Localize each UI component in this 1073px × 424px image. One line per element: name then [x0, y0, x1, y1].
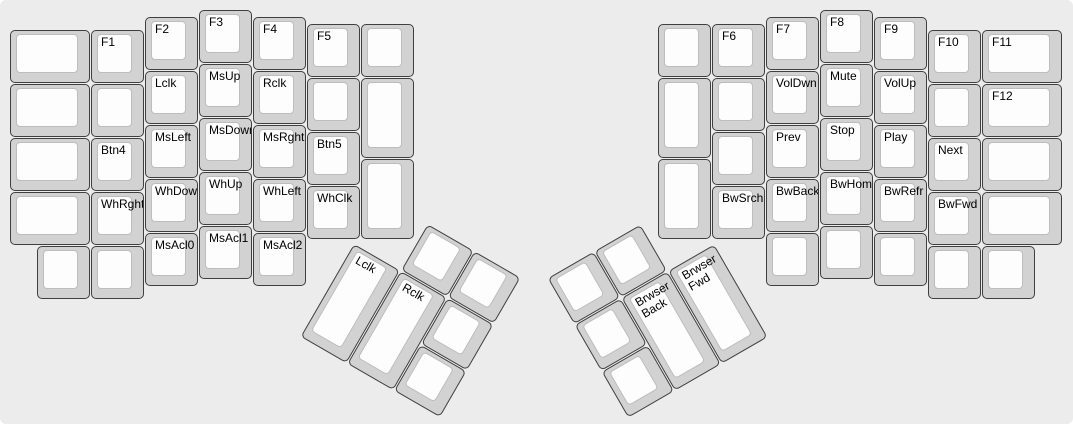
keytop: Rclk: [259, 75, 294, 114]
keytop: [609, 354, 659, 405]
key-label: Stop: [830, 124, 855, 137]
keytop: F6: [718, 28, 753, 67]
keytop: [16, 88, 78, 127]
key-label: Play: [884, 131, 907, 144]
key-label: Btn4: [101, 144, 126, 157]
keytop: WhUp: [205, 176, 240, 215]
keytop: Mute: [826, 68, 861, 107]
key-label: Next: [938, 144, 963, 157]
key-blank[interactable]: [982, 246, 1035, 299]
key-msup[interactable]: MsUp: [199, 64, 252, 117]
keytop: Prev: [772, 129, 807, 168]
key-lclk[interactable]: Lclk: [145, 71, 198, 124]
keytop: [988, 196, 1050, 235]
key-label: F7: [776, 23, 790, 36]
key-label: WhDown: [155, 185, 198, 198]
key-msacl0[interactable]: MsAcl0: [145, 233, 198, 286]
keytop: VolDwn: [772, 75, 807, 114]
keytop: WhRght: [97, 196, 132, 235]
key-label: F6: [722, 30, 736, 43]
keytop: WhLeft: [259, 183, 294, 222]
key-f10[interactable]: F10: [928, 30, 981, 83]
key-label: F1: [101, 36, 115, 49]
key-label: F11: [992, 36, 1012, 49]
key-label: VolUp: [884, 77, 916, 90]
key-blank[interactable]: [928, 84, 981, 137]
key-volup[interactable]: VolUp: [874, 71, 927, 124]
keytop: [555, 261, 605, 312]
keytop: BwSrch: [718, 190, 753, 229]
key-blank[interactable]: [307, 78, 360, 131]
key-blank[interactable]: [982, 138, 1062, 191]
key-label: MsAcl2: [263, 239, 302, 252]
key-blank[interactable]: [10, 192, 90, 245]
key-label: WhRght: [101, 198, 144, 211]
key-whdown[interactable]: WhDown: [145, 179, 198, 232]
key-bwfwd[interactable]: BwFwd: [928, 192, 981, 245]
key-next[interactable]: Next: [928, 138, 981, 191]
key-blank[interactable]: [10, 30, 90, 83]
keytop: MsLeft: [151, 129, 186, 168]
keytop: [664, 163, 699, 229]
key-label: MsLeft: [155, 131, 191, 144]
keytop: MsDown: [205, 122, 240, 161]
key-label: MsRght: [263, 131, 304, 144]
key-blank[interactable]: [91, 84, 144, 137]
key-whclk[interactable]: WhClk: [307, 186, 360, 239]
keytop: [43, 250, 78, 289]
keytop: Play: [880, 129, 915, 168]
key-f11[interactable]: F11: [982, 30, 1062, 83]
keytop: F4: [259, 21, 294, 60]
key-f12[interactable]: F12: [982, 84, 1062, 137]
key-blank[interactable]: [928, 246, 981, 299]
key-label: F4: [263, 23, 277, 36]
keytop: [718, 82, 753, 121]
keytop: F2: [151, 21, 186, 60]
key-msrght[interactable]: MsRght: [253, 125, 306, 178]
key-blank[interactable]: [361, 159, 414, 239]
keytop: [664, 28, 699, 67]
key-bwback[interactable]: BwBack: [766, 179, 819, 232]
keytop: F1: [97, 34, 132, 73]
key-label: Lclk: [155, 77, 176, 90]
key-label: F5: [317, 30, 331, 43]
key-label: F3: [209, 16, 223, 29]
key-f7[interactable]: F7: [766, 17, 819, 70]
key-blank[interactable]: [10, 138, 90, 191]
key-label: WhLeft: [263, 185, 301, 198]
key-label: F9: [884, 23, 898, 36]
keytop: [16, 34, 78, 73]
key-label: BwRefr: [884, 185, 923, 198]
keytop: [367, 163, 402, 229]
keytop: WhDown: [151, 183, 186, 222]
key-blank[interactable]: [361, 78, 414, 158]
key-play[interactable]: Play: [874, 125, 927, 178]
key-bwsrch[interactable]: BwSrch: [712, 186, 765, 239]
key-f3[interactable]: F3: [199, 10, 252, 63]
keytop: F3: [205, 14, 240, 53]
key-msdown[interactable]: MsDown: [199, 118, 252, 171]
keytop: [97, 88, 132, 127]
keytop: F12: [988, 88, 1050, 127]
key-blank[interactable]: [91, 246, 144, 299]
key-f9[interactable]: F9: [874, 17, 927, 70]
key-blank[interactable]: [874, 233, 927, 286]
keytop: F10: [934, 34, 969, 73]
key-label: BwBack: [776, 185, 819, 198]
key-blank[interactable]: [658, 24, 711, 77]
keytop: F9: [880, 21, 915, 60]
keytop: MsAcl2: [259, 237, 294, 276]
keytop: [97, 250, 132, 289]
key-whleft[interactable]: WhLeft: [253, 179, 306, 232]
key-f8[interactable]: F8: [820, 10, 873, 63]
keytop: MsAcl1: [205, 230, 240, 269]
key-label: MsAcl0: [155, 239, 194, 252]
keytop: Next: [934, 142, 969, 181]
keytop: Stop: [826, 122, 861, 161]
key-f5[interactable]: F5: [307, 24, 360, 77]
key-label: BwSrch: [722, 192, 763, 205]
keytop: [934, 88, 969, 127]
key-blank[interactable]: [37, 246, 90, 299]
keytop: MsRght: [259, 129, 294, 168]
key-blank[interactable]: [712, 132, 765, 185]
keytop: [988, 142, 1050, 181]
key-label: MsUp: [209, 70, 240, 83]
key-voldwn[interactable]: VolDwn: [766, 71, 819, 124]
key-stop[interactable]: Stop: [820, 118, 873, 171]
key-label: Prev: [776, 131, 801, 144]
key-label: WhClk: [317, 192, 352, 205]
keyboard-canvas: F1Btn4WhRghtF2LclkMsLeftWhDownMsAcl0F3Ms…: [0, 0, 1073, 424]
keytop: [582, 307, 632, 358]
keytop: [411, 231, 461, 282]
key-blank[interactable]: [658, 159, 711, 239]
key-blank[interactable]: [982, 192, 1062, 245]
key-btn4[interactable]: Btn4: [91, 138, 144, 191]
keytop: Lclk: [151, 75, 186, 114]
key-label: MsAcl1: [209, 232, 248, 245]
key-label: F12: [992, 90, 1013, 103]
key-label: Lclk: [353, 254, 378, 276]
keytop: BwRefr: [880, 183, 915, 222]
keytop: MsAcl0: [151, 237, 186, 276]
key-label: Mute: [830, 70, 857, 83]
keytop: F11: [988, 34, 1050, 73]
keytop: [404, 351, 454, 402]
key-label: BwFwd: [938, 198, 977, 211]
key-label: BwHome: [830, 178, 873, 191]
key-label: Rclk: [400, 281, 427, 304]
key-blank[interactable]: [712, 78, 765, 131]
key-rclk[interactable]: Rclk: [253, 71, 306, 124]
keytop: MsUp: [205, 68, 240, 107]
key-blank[interactable]: [361, 24, 414, 77]
key-label: Brwser Fwd: [680, 252, 725, 293]
keytop: [772, 237, 807, 276]
keytop: [826, 230, 861, 269]
keytop: [313, 82, 348, 121]
keytop: [367, 28, 402, 67]
keytop: WhClk: [313, 190, 348, 229]
keytop: [16, 196, 78, 235]
key-label: MsDown: [209, 124, 252, 137]
keytop: [664, 82, 699, 148]
key-mute[interactable]: Mute: [820, 64, 873, 117]
key-f4[interactable]: F4: [253, 17, 306, 70]
key-msacl2[interactable]: MsAcl2: [253, 233, 306, 286]
keytop: BwFwd: [934, 196, 969, 235]
key-f6[interactable]: F6: [712, 24, 765, 77]
key-blank[interactable]: [10, 84, 90, 137]
key-bwhome[interactable]: BwHome: [820, 172, 873, 225]
keytop: F5: [313, 28, 348, 67]
key-blank[interactable]: [766, 233, 819, 286]
key-f1[interactable]: F1: [91, 30, 144, 83]
key-label: F2: [155, 23, 169, 36]
key-blank[interactable]: [820, 226, 873, 279]
keytop: Btn4: [97, 142, 132, 181]
keytop: [16, 142, 78, 181]
keytop: BwBack: [772, 183, 807, 222]
keytop: [458, 258, 508, 309]
keytop: [988, 250, 1023, 289]
key-label: Btn5: [317, 138, 342, 151]
keytop: [934, 250, 969, 289]
key-msleft[interactable]: MsLeft: [145, 125, 198, 178]
key-blank[interactable]: [658, 78, 711, 158]
keytop: [718, 136, 753, 175]
key-btn5[interactable]: Btn5: [307, 132, 360, 185]
key-f2[interactable]: F2: [145, 17, 198, 70]
keytop: [367, 82, 402, 148]
keytop: F7: [772, 21, 807, 60]
key-whrght[interactable]: WhRght: [91, 192, 144, 245]
key-msacl1[interactable]: MsAcl1: [199, 226, 252, 279]
keytop: [431, 304, 481, 355]
key-label: F8: [830, 16, 844, 29]
keytop: BwHome: [826, 176, 861, 215]
keytop: [880, 237, 915, 276]
key-label: F10: [938, 36, 959, 49]
key-label: WhUp: [209, 178, 242, 191]
key-bwrefr[interactable]: BwRefr: [874, 179, 927, 232]
keytop: F8: [826, 14, 861, 53]
key-prev[interactable]: Prev: [766, 125, 819, 178]
key-whup[interactable]: WhUp: [199, 172, 252, 225]
keytop: VolUp: [880, 75, 915, 114]
keytop: [602, 234, 652, 285]
key-label: VolDwn: [776, 77, 817, 90]
key-label: Rclk: [263, 77, 286, 90]
keytop: Btn5: [313, 136, 348, 175]
